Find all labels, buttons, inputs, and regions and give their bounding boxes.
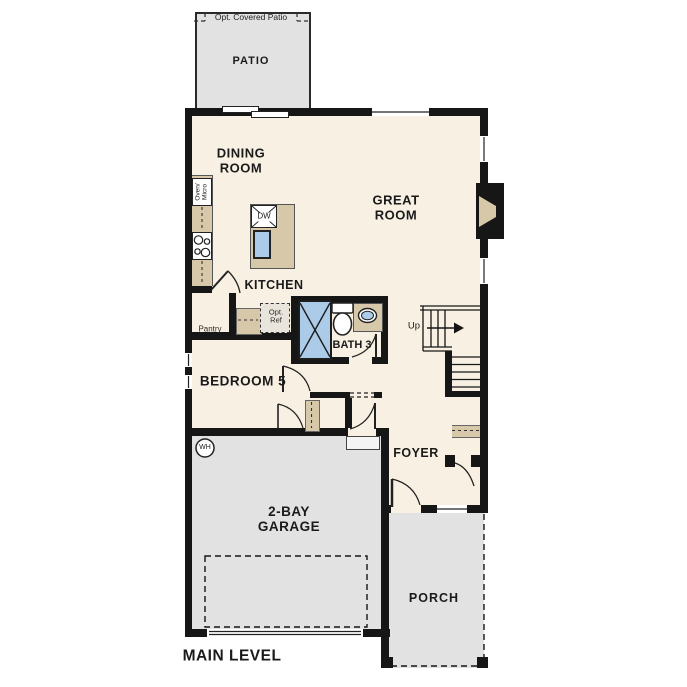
bedroom5-label: BEDROOM 5: [200, 373, 286, 388]
island-sink: [253, 230, 271, 259]
wall-kitchen-counter-end: [185, 285, 212, 293]
counter-by-pantry: [236, 308, 262, 335]
bath-sink-counter: [353, 303, 383, 332]
front-door-opening: [391, 505, 421, 513]
shower: [298, 300, 332, 360]
wall-hall-b: [374, 392, 382, 398]
foyer-label: FOYER: [393, 446, 439, 460]
floor-plan: Opt. Covered Patio PATIO DINING ROOM GRE…: [0, 0, 687, 687]
wall-closet-right: [345, 392, 352, 432]
porch-post-br: [477, 657, 488, 668]
dining-room-label: DINING ROOM: [206, 146, 276, 175]
window-foyer-sidelite: [437, 505, 467, 513]
oven-micro-label: Oven/ Micro: [195, 179, 210, 205]
window-right-1: [480, 136, 488, 162]
water-heater-label: WH: [199, 444, 211, 452]
wall-stair-bottom: [452, 391, 488, 397]
window-great-room-top: [372, 108, 429, 116]
garage-label: 2-BAY GARAGE: [242, 504, 336, 534]
kitchen-label: KITCHEN: [244, 278, 303, 292]
wall-bath-door-jamb: [372, 357, 381, 364]
pantry-label: Pantry: [198, 326, 221, 335]
wall-garage-right: [381, 428, 389, 668]
opt-ref-label: Opt. Ref: [264, 309, 288, 326]
window-bedroom-1: [185, 353, 192, 367]
wall-bath-left: [291, 296, 298, 362]
hall-dashed-opening: [350, 392, 374, 398]
fireplace: [476, 183, 504, 239]
bath3-label: BATH 3: [333, 339, 372, 351]
dishwasher-label: DW: [256, 213, 271, 222]
cooktop-box: [192, 232, 212, 260]
patio-label: PATIO: [233, 55, 270, 67]
wall-stair-mid: [445, 351, 452, 397]
porch-label: PORCH: [409, 591, 459, 605]
great-room-label: GREAT ROOM: [366, 193, 426, 222]
wall-stair-closet-jamb-l: [445, 455, 455, 467]
wall-right: [480, 108, 488, 513]
garage-entry-step: [346, 436, 380, 450]
bedroom-closet-shelf: [305, 400, 320, 432]
garage-entry-opening: [348, 428, 376, 436]
wall-garage-top-a: [192, 428, 348, 436]
wall-garage-top-b: [376, 428, 382, 436]
stairs-up-label: Up: [408, 322, 420, 333]
garage-door-opening: [207, 629, 363, 637]
bath-door-opening: [349, 357, 372, 364]
wall-hall-a: [310, 392, 350, 398]
window-right-2: [480, 258, 488, 284]
understair-shelf: [452, 425, 480, 438]
patio-slider-panel-2: [251, 111, 289, 118]
wall-stair-closet-jamb-r: [471, 455, 480, 467]
plan-title: MAIN LEVEL: [183, 647, 282, 664]
porch-post-bl: [382, 657, 393, 668]
patio-opt-label: Opt. Covered Patio: [215, 13, 287, 23]
wall-left: [185, 108, 192, 637]
window-bedroom-2: [185, 375, 192, 389]
